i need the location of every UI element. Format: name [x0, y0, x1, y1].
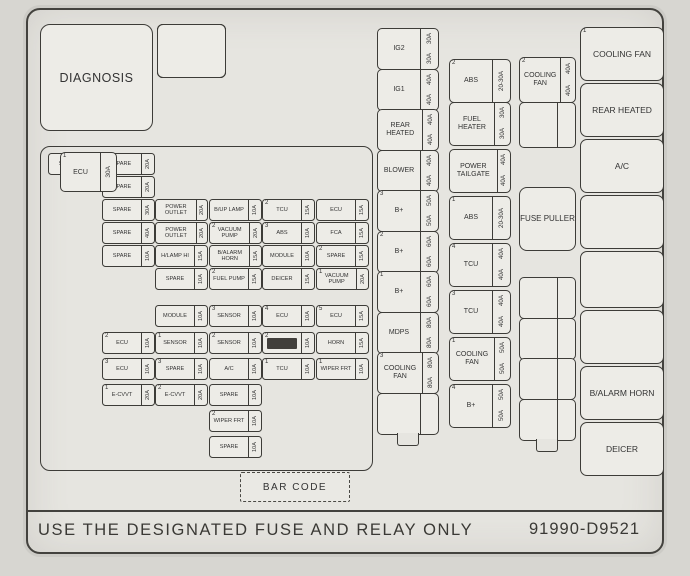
amp-strip: 10A	[301, 306, 314, 326]
empty-fuse-slot	[519, 318, 576, 360]
amp-rating: 15A	[359, 251, 365, 261]
amp-rating: 30A	[426, 53, 433, 64]
fuse: 1 ABS 20-30A 20-30A	[449, 196, 511, 240]
mini-fuse: FCA 15A	[316, 222, 369, 244]
amp-strip: 10A	[248, 437, 261, 457]
fuse-label: BLOWER	[378, 151, 420, 191]
fuse: 1 B+ 60A 60A	[377, 271, 439, 313]
amp-rating: 10A	[252, 364, 258, 374]
ecu-main-fuse: 1 ECU 30A	[60, 152, 117, 192]
amp-strip: 10A	[355, 359, 368, 379]
fuse-label: ECU	[103, 333, 141, 353]
mini-fuse: 4 ECU 10A	[262, 305, 315, 327]
fuse-number: 2	[105, 333, 108, 339]
mini-fuse: POWER OUTLET 20A	[155, 199, 208, 221]
amp-strip: 10A	[248, 411, 261, 431]
fuse-label: POWER TAILGATE	[450, 150, 497, 192]
fuse-number: 2	[212, 333, 215, 339]
mini-fuse: 2 E-CVVT 20A	[155, 384, 208, 406]
amp-rating: 10A	[252, 390, 258, 400]
amp-strip: 15A	[194, 246, 207, 266]
mini-fuse: H/LAMP HI 15A	[155, 245, 208, 267]
fuse-label: B/UP LAMP	[210, 200, 248, 220]
fuse-number: 2	[158, 385, 161, 391]
fuse-label: MDPS	[378, 313, 420, 353]
fuse-number: 1	[158, 333, 161, 339]
amp-rating: 50A	[499, 363, 506, 374]
amp-rating: 10A	[305, 311, 311, 321]
amp-strip: 40A 40A	[492, 291, 510, 333]
mini-fuse: 1 E-CVVT 20A	[102, 384, 155, 406]
fuse-label: SPARE	[210, 385, 248, 405]
relay-box	[580, 251, 664, 308]
amp-rating: 50A	[426, 215, 433, 226]
fuse-number: 2	[212, 411, 215, 417]
amp-rating: 10A	[252, 205, 258, 215]
amp-strip: 20A	[141, 154, 154, 174]
amp-strip	[557, 103, 575, 147]
amp-rating: 20-30A	[498, 71, 505, 91]
amp-rating: 10A	[305, 228, 311, 238]
amp-rating: 10A	[252, 338, 258, 348]
amp-rating: 40A	[426, 94, 433, 105]
fuse-label: COOLING FAN	[450, 338, 494, 380]
amp-rating: 40A	[426, 175, 433, 186]
amp-strip	[557, 400, 575, 440]
amp-strip: 20A	[196, 223, 207, 243]
amp-rating: 20A	[198, 390, 204, 400]
amp-strip: 40A 40A	[492, 244, 510, 286]
amp-rating: 40A	[500, 154, 507, 165]
fuse-label: B+	[378, 232, 420, 272]
amp-rating: 60A	[426, 256, 433, 267]
fuse-column-3-empty-block	[519, 277, 576, 439]
fuse-number: 2	[380, 232, 383, 238]
fuse-box-diagram: { "title_box": { "diagnosis": "DIAGNOSIS…	[0, 0, 690, 576]
fuse-number: 2	[265, 333, 268, 339]
amp-strip: 10A	[301, 223, 314, 243]
fuse-column-1: IG2 30A 30A IG1 40A 40A REAR HEATED 40A …	[377, 28, 439, 433]
amp-strip: 10A	[248, 359, 261, 379]
fuse-label: ABS	[263, 223, 301, 243]
fuse-label: B+	[378, 272, 420, 312]
amp-rating: 15A	[359, 205, 365, 215]
amp-rating: 40A	[426, 155, 433, 166]
fuse-label: MODULE	[263, 246, 301, 266]
fuse-number: 2	[319, 246, 322, 252]
fuse-label: SPARE	[210, 437, 248, 457]
column1-tab	[397, 433, 419, 446]
fuse-label: IG1	[378, 70, 420, 110]
amp-strip: 40A	[141, 223, 154, 243]
amp-strip: 15A	[355, 306, 368, 326]
mini-fuse: 2 10A	[262, 332, 315, 354]
amp-rating: 40A	[498, 269, 505, 280]
amp-strip: 15A	[355, 223, 368, 243]
mini-fuse: 2 FUEL PUMP 15A	[209, 268, 262, 290]
amp-strip: 15A	[248, 269, 261, 289]
fuse	[377, 393, 439, 435]
amp-rating: 40A	[426, 74, 433, 85]
fuse: IG2 30A 30A	[377, 28, 439, 70]
amp-strip: 20A	[194, 385, 207, 405]
fuse: FUEL HEATER 30A 30A	[449, 102, 511, 146]
amp-rating: 30A	[426, 33, 433, 44]
fuse-label: DEICER	[263, 269, 301, 289]
fuse-label: POWER OUTLET	[156, 200, 196, 220]
fuse: 3 B+ 50A 50A	[377, 190, 439, 232]
amp-strip: 30A	[100, 153, 116, 191]
amp-rating: 15A	[359, 338, 365, 348]
fuse: 3 COOLING FAN 80A 80A	[377, 352, 439, 394]
amp-strip: 40A 40A	[420, 151, 438, 191]
amp-strip: 10A	[248, 385, 261, 405]
amp-strip: 80A 80A	[422, 353, 438, 393]
amp-rating: 50A	[426, 195, 433, 206]
barcode-placeholder: BAR CODE	[240, 472, 350, 502]
amp-strip: 10A	[141, 246, 154, 266]
amp-rating: 80A	[426, 337, 433, 348]
amp-rating: 50A	[499, 342, 506, 353]
fuse-number: 3	[158, 359, 161, 365]
fuse-number: 4	[452, 385, 455, 391]
amp-strip: 30A	[141, 200, 154, 220]
warning-text: USE THE DESIGNATED FUSE AND RELAY ONLY	[38, 521, 473, 540]
amp-rating: 10A	[305, 338, 311, 348]
amp-rating: 40A	[498, 295, 505, 306]
mini-fuse: 2 VACUUM PUMP 20A	[209, 222, 262, 244]
amp-rating: 40A	[498, 248, 505, 259]
fuse-label: SENSOR	[210, 333, 248, 353]
amp-rating: 80A	[426, 317, 433, 328]
amp-strip: 15A	[355, 200, 368, 220]
fuse-number: 2	[212, 269, 215, 275]
amp-rating: 80A	[427, 357, 434, 368]
amp-rating: 10A	[252, 442, 258, 452]
mini-fuse: DEICER 15A	[262, 268, 315, 290]
amp-strip: 15A	[301, 200, 314, 220]
fuse-label: FCA	[317, 223, 355, 243]
amp-rating: 10A	[198, 364, 204, 374]
amp-rating: 60A	[426, 296, 433, 307]
amp-strip: 10A	[301, 246, 314, 266]
amp-rating: 20A	[199, 205, 205, 215]
amp-rating: 20A	[360, 274, 366, 284]
amp-rating: 10A	[252, 311, 258, 321]
relay-box	[157, 24, 226, 78]
right-relay-column: 1 COOLING FAN REAR HEATED A/C B/ALARM HO…	[580, 27, 664, 478]
fuse-number: 1	[63, 153, 66, 159]
amp-rating: 10A	[198, 311, 204, 321]
fuse-label: SPARE	[317, 246, 355, 266]
fuse-label: H/LAMP HI	[156, 246, 194, 266]
amp-strip: 50A 50A	[494, 338, 510, 380]
fuse-number: 3	[212, 306, 215, 312]
empty-fuse-slot	[519, 277, 576, 319]
amp-rating: 20A	[253, 228, 259, 238]
fuse-number: 5	[319, 306, 322, 312]
amp-rating: 30A	[499, 128, 506, 139]
mini-fuse: SPARE 10A	[155, 268, 208, 290]
amp-rating: 10A	[198, 338, 204, 348]
mini-fuse: A/C 10A	[209, 358, 262, 380]
mini-fuse: MODULE 10A	[155, 305, 208, 327]
fuse-label: SENSOR	[156, 333, 194, 353]
mini-fuse: SPARE 40A	[102, 222, 155, 244]
amp-strip: 50A 50A	[420, 191, 438, 231]
fuse-label: COOLING FAN	[520, 58, 560, 102]
amp-rating: 10A	[145, 364, 151, 374]
fuse: 2 ABS 20-30A 20-30A	[449, 59, 511, 103]
fuse-label	[520, 319, 557, 359]
fuse-label: TCU	[450, 291, 492, 333]
fuse-label: ECU	[263, 306, 301, 326]
fuse-number: 2	[452, 60, 455, 66]
amp-rating: 60A	[426, 276, 433, 287]
fuse-label: SPARE	[103, 246, 141, 266]
fuse-label	[263, 333, 301, 353]
fuse-number: 2	[212, 223, 215, 229]
fuse-column-2: 2 ABS 20-30A 20-30A FUEL HEATER 30A 30A …	[449, 59, 511, 426]
amp-strip: 15A	[301, 269, 314, 289]
fuse-label: IG2	[378, 29, 420, 69]
relay-label: DEICER	[606, 444, 638, 454]
fuse	[519, 102, 576, 148]
relay-box	[580, 310, 664, 364]
fuse-number: 3	[452, 291, 455, 297]
fuse-number: 3	[265, 223, 268, 229]
mini-fuse: 1 TCU 10A	[262, 358, 315, 380]
amp-strip: 50A 50A	[492, 385, 510, 427]
mini-fuse-grid: SPARE 10A SPARE 20A SPARE 20A SPARE	[40, 146, 373, 471]
fuse-column-3-top: 2 COOLING FAN 40A 40A	[519, 57, 576, 146]
fuse-label: E-CVVT	[103, 385, 141, 405]
amp-rating: 30A	[105, 166, 112, 178]
amp-strip: 20A	[356, 269, 368, 289]
mini-fuse: 3 ECU 10A	[102, 358, 155, 380]
amp-rating: 10A	[252, 416, 258, 426]
fuse-label: SPARE	[156, 359, 194, 379]
fuse-label: FUEL HEATER	[450, 103, 494, 145]
mini-fuse: B/ALARM HORN 15A	[209, 245, 262, 267]
relay-label: COOLING FAN	[593, 49, 651, 59]
relay-box: REAR HEATED	[580, 83, 664, 137]
amp-strip: 10A	[194, 269, 207, 289]
fuse-label: SPARE	[156, 269, 194, 289]
fuse: 4 TCU 40A 40A	[449, 243, 511, 287]
fuse: 2 B+ 60A 60A	[377, 231, 439, 273]
fuse-label: REAR HEATED	[378, 110, 422, 150]
fuse-label: B+	[378, 191, 420, 231]
amp-rating: 40A	[427, 114, 434, 125]
amp-rating: 15A	[253, 251, 259, 261]
empty-fuse-slot	[519, 399, 576, 441]
fuse-number: 4	[452, 244, 455, 250]
fuse-label: SENSOR	[210, 306, 248, 326]
amp-strip: 10A	[141, 359, 154, 379]
amp-strip: 10A	[248, 333, 261, 353]
fuse-number: 1	[319, 359, 322, 365]
relay-label: B/ALARM HORN	[590, 388, 655, 398]
mini-fuse: 3 SENSOR 10A	[209, 305, 262, 327]
mini-fuse: 1 WIPER FRT 10A	[316, 358, 369, 380]
amp-strip: 30A 30A	[420, 29, 438, 69]
fuse-panel-label: DIAGNOSIS BLOWER START 2 COOLING FAN FUE…	[26, 8, 664, 554]
fuse-label	[520, 103, 557, 147]
amp-rating: 10A	[145, 338, 151, 348]
fuse-number: 2	[265, 200, 268, 206]
mini-fuse: SPARE 10A	[209, 384, 262, 406]
amp-strip: 10A	[194, 333, 207, 353]
amp-rating: 40A	[500, 175, 507, 186]
fuse: 1 COOLING FAN 50A 50A	[449, 337, 511, 381]
fuse-label: VACUUM PUMP	[317, 269, 356, 289]
amp-rating: 30A	[499, 107, 506, 118]
fuse-label: B+	[450, 385, 492, 427]
amp-strip: 15A	[249, 246, 261, 266]
fuse-label: ABS	[450, 60, 492, 102]
amp-strip: 40A 40A	[497, 150, 510, 192]
amp-strip: 40A 40A	[422, 110, 438, 150]
amp-rating: 20-30A	[498, 208, 505, 228]
fuse: MDPS 80A 80A	[377, 312, 439, 354]
diagnosis-relay-box: DIAGNOSIS	[40, 24, 153, 131]
amp-rating: 15A	[305, 274, 311, 284]
mini-fuse: POWER OUTLET 20A	[155, 222, 208, 244]
amp-strip: 10A	[301, 359, 314, 379]
fuse-number: 4	[265, 306, 268, 312]
amp-rating: 15A	[305, 205, 311, 215]
relay-box: DEICER	[580, 422, 664, 476]
amp-rating: 40A	[565, 63, 572, 74]
mini-fuse: SPARE 30A	[102, 199, 155, 221]
amp-strip: 20A	[141, 385, 154, 405]
relay-label: A/C	[615, 161, 629, 171]
amp-strip: 10A	[248, 200, 261, 220]
mini-fuse: 3 ABS 10A	[262, 222, 315, 244]
mini-fuse: ECU 15A	[316, 199, 369, 221]
fuse: BLOWER 40A 40A	[377, 150, 439, 192]
fuse: IG1 40A 40A	[377, 69, 439, 111]
mini-fuse: 5 ECU 15A	[316, 305, 369, 327]
fuse-puller-box: FUSE PULLER	[519, 187, 576, 251]
mini-fuse: B/UP LAMP 10A	[209, 199, 262, 221]
fuse-label: ECU	[61, 153, 100, 191]
amp-strip: 10A	[194, 359, 207, 379]
relay-box	[580, 195, 664, 249]
amp-strip: 80A 80A	[420, 313, 438, 353]
relay-number: 1	[583, 28, 586, 34]
amp-rating: 10A	[305, 251, 311, 261]
fuse-label: TCU	[450, 244, 492, 286]
fuse-label	[520, 359, 557, 399]
fuse-number: 1	[265, 359, 268, 365]
fuse-label: FUEL PUMP	[210, 269, 248, 289]
mini-fuse: SPARE 10A	[102, 245, 155, 267]
fuse-label: ECU	[103, 359, 141, 379]
amp-strip	[557, 319, 575, 359]
amp-rating: 50A	[498, 389, 505, 400]
fuse: 4 B+ 50A 50A	[449, 384, 511, 428]
fuse-label	[378, 394, 420, 434]
amp-rating: 20A	[145, 390, 151, 400]
amp-strip: 20A	[196, 200, 207, 220]
fuse-label: HORN	[317, 333, 355, 353]
mini-fuse: 2 ECU 10A	[102, 332, 155, 354]
fuse-label: TCU	[263, 200, 301, 220]
amp-rating: 50A	[498, 410, 505, 421]
mini-fuse: HORN 15A	[316, 332, 369, 354]
amp-rating: 15A	[359, 311, 365, 321]
fuse-label	[520, 278, 557, 318]
fuse-label: WIPER FRT	[210, 411, 248, 431]
amp-strip: 10A	[248, 306, 261, 326]
amp-rating: 10A	[145, 251, 151, 261]
amp-strip	[557, 359, 575, 399]
mini-fuse: 2 SENSOR 10A	[209, 332, 262, 354]
fuse-number: 3	[380, 353, 383, 359]
fuse-label	[520, 400, 557, 440]
fuse-label: VACUUM PUMP	[210, 223, 249, 243]
mini-fuse: MODULE 10A	[262, 245, 315, 267]
fuse-number: 1	[452, 197, 455, 203]
fuse-number: 3	[380, 191, 383, 197]
amp-strip: 15A	[355, 246, 368, 266]
mini-fuse: 1 VACUUM PUMP 20A	[316, 268, 369, 290]
amp-rating: 10A	[198, 274, 204, 284]
mini-fuse: 2 WIPER FRT 10A	[209, 410, 262, 432]
amp-strip: 60A 60A	[420, 232, 438, 272]
amp-strip: 10A	[301, 333, 314, 353]
amp-rating: 20A	[199, 228, 205, 238]
amp-strip: 30A 30A	[494, 103, 510, 145]
amp-rating: 20A	[145, 182, 151, 192]
part-number: 91990-D9521	[529, 520, 640, 539]
fuse-number: 1	[452, 338, 455, 344]
fuse-label: A/C	[210, 359, 248, 379]
fuse-number: 1	[380, 272, 383, 278]
fuse: POWER TAILGATE 40A 40A	[449, 149, 511, 193]
relay-box: 1 COOLING FAN	[580, 27, 664, 81]
amp-rating: 10A	[305, 364, 311, 374]
amp-strip: 20A	[141, 177, 154, 197]
fuse-label: SPARE	[103, 200, 141, 220]
amp-strip: 10A	[194, 306, 207, 326]
fuse: REAR HEATED 40A 40A	[377, 109, 439, 151]
top-relay-grid: BLOWER START 2 COOLING FAN FUEL PUMP	[157, 24, 363, 132]
amp-rating: 15A	[359, 228, 365, 238]
fuse-label: WIPER FRT	[317, 359, 355, 379]
amp-rating: 40A	[427, 134, 434, 145]
fuse-number: 1	[319, 269, 322, 275]
mini-fuse: 2 TCU 15A	[262, 199, 315, 221]
fuse-label: COOLING FAN	[378, 353, 422, 393]
relay-label: REAR HEATED	[592, 105, 652, 115]
fuse-label: MODULE	[156, 306, 194, 326]
amp-strip	[557, 278, 575, 318]
mini-fuse: 2 SPARE 15A	[316, 245, 369, 267]
fuse-label: E-CVVT	[156, 385, 194, 405]
fuse-label: ECU	[317, 200, 355, 220]
fuse-label: B/ALARM HORN	[210, 246, 249, 266]
amp-strip: 20A	[249, 223, 261, 243]
amp-rating: 40A	[145, 228, 151, 238]
fuse-label: POWER OUTLET	[156, 223, 196, 243]
fuse-label: SPARE	[103, 223, 141, 243]
amp-strip: 10A	[141, 333, 154, 353]
amp-rating: 15A	[252, 274, 258, 284]
fuse-number: 1	[105, 385, 108, 391]
